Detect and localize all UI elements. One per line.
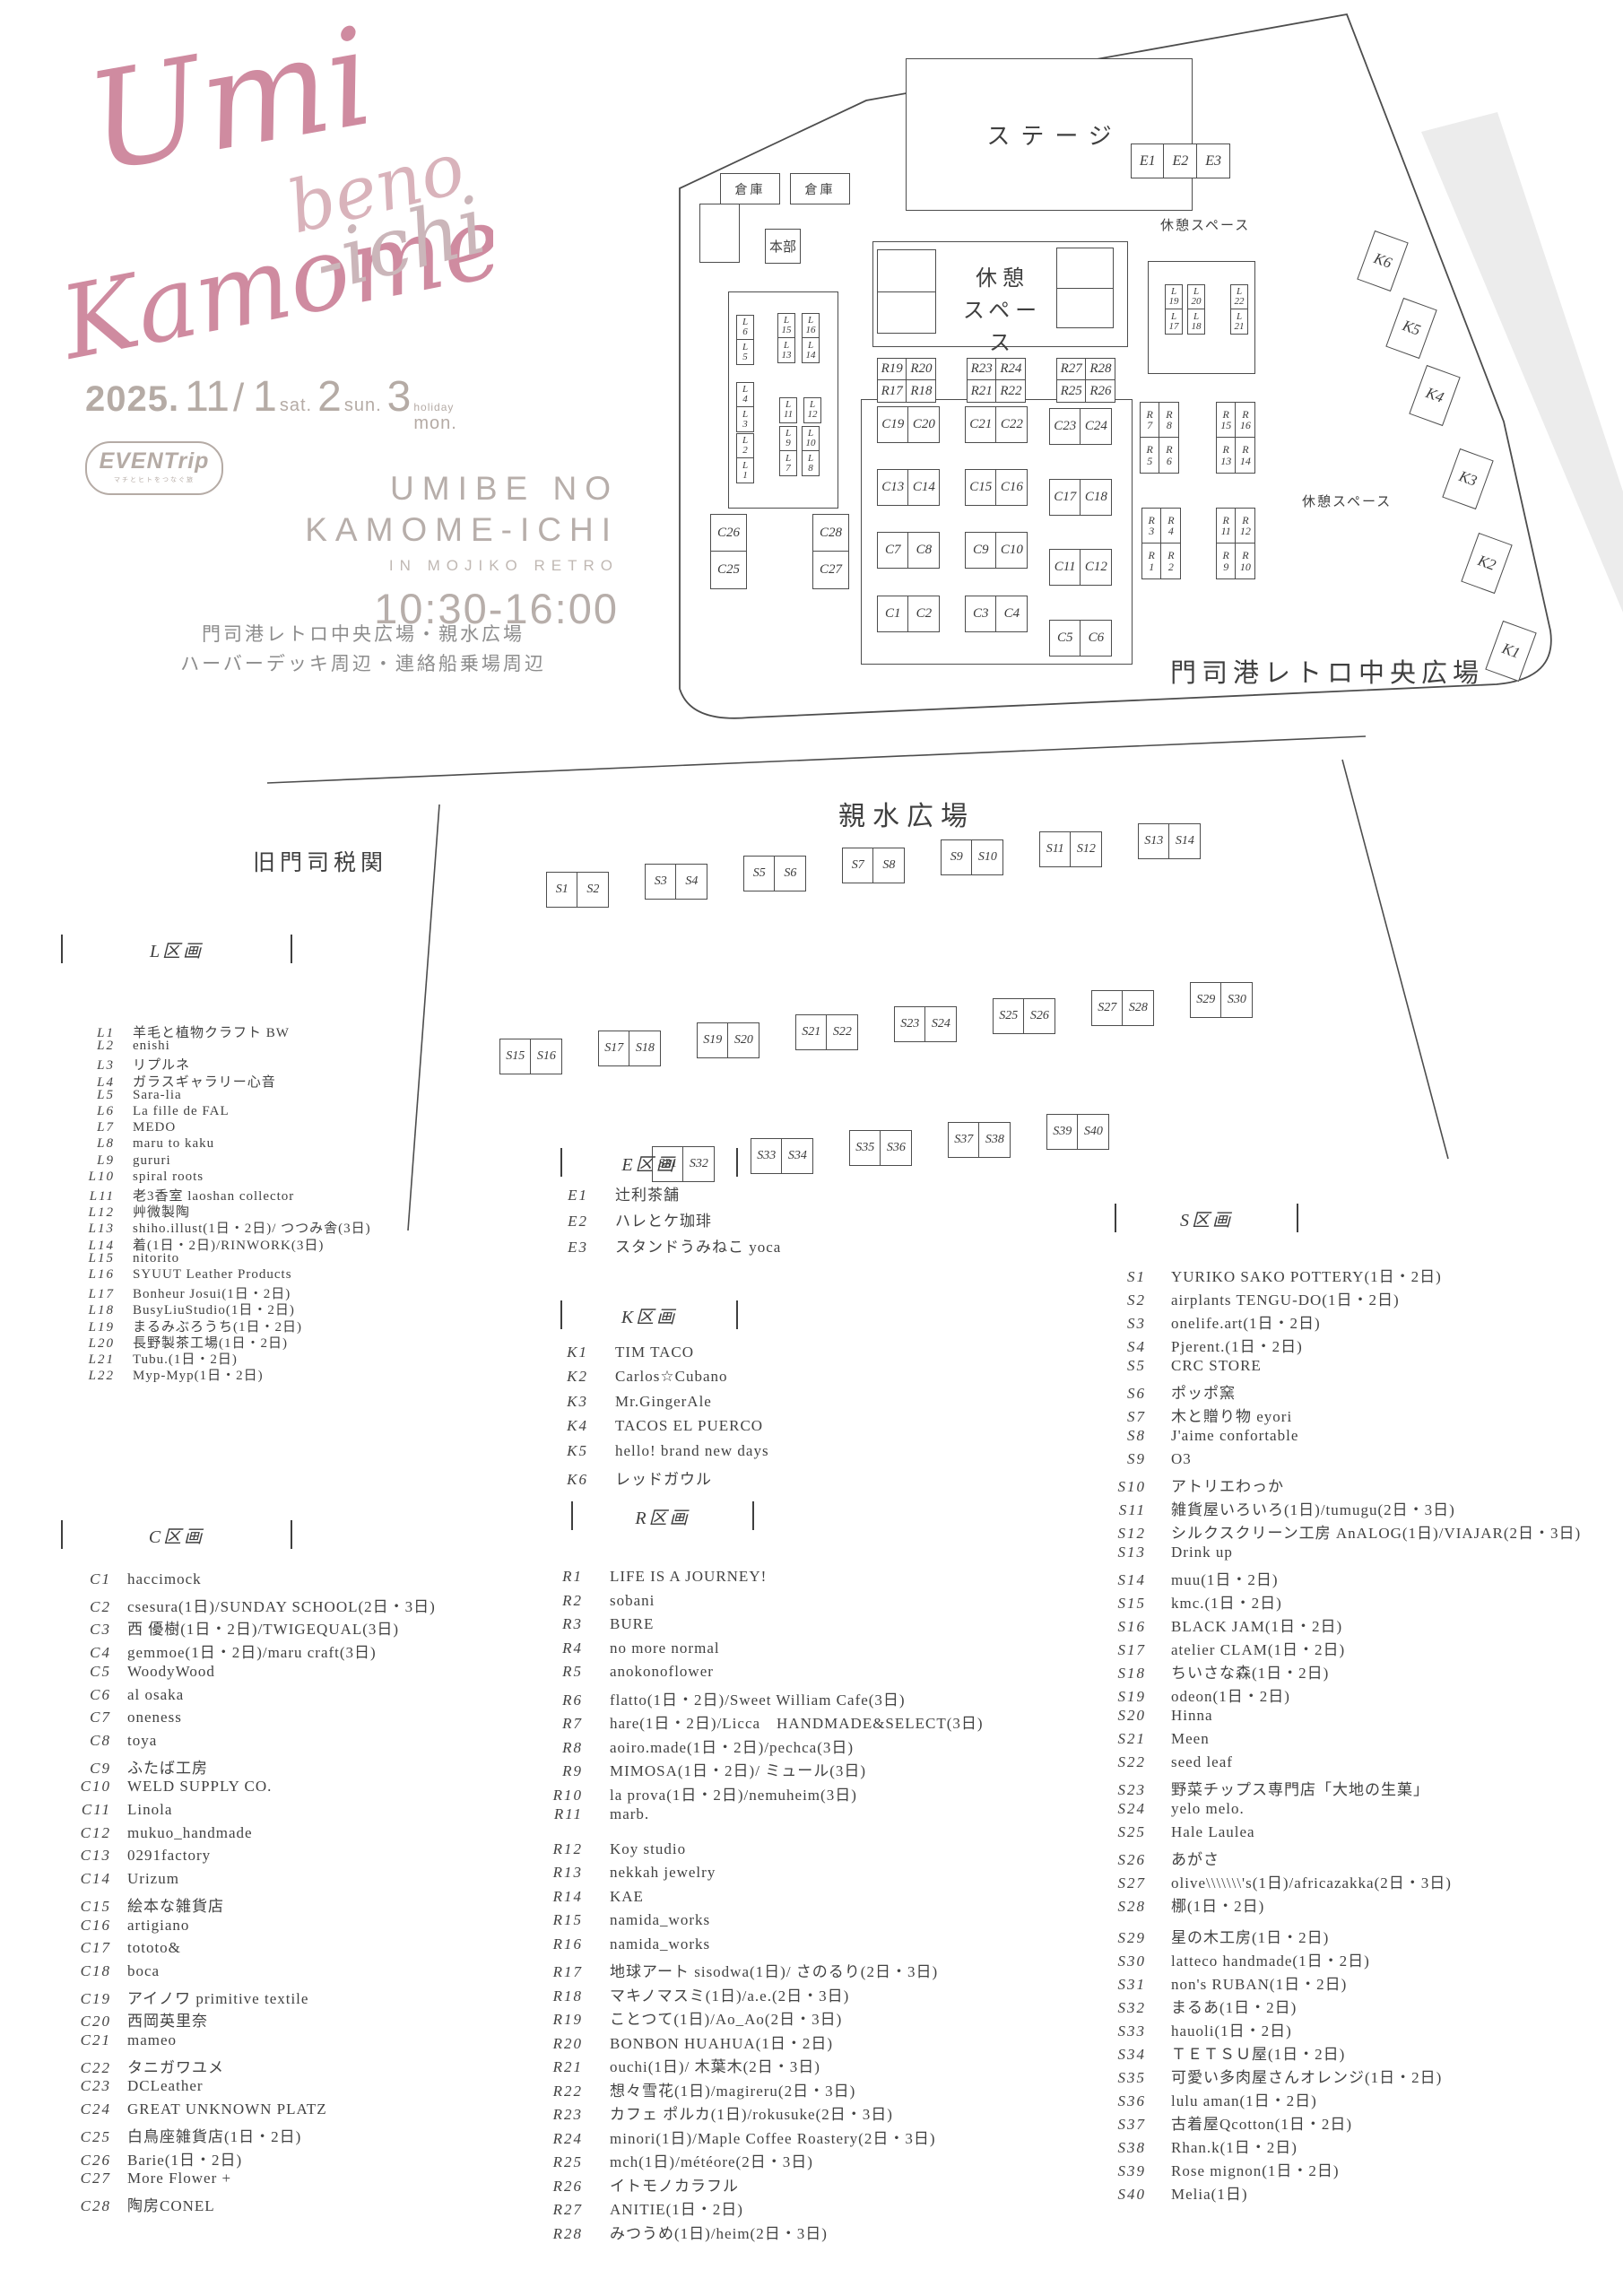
booth-number: S40 bbox=[1081, 2186, 1146, 2204]
list-item-s17: S17atelier CLAM(1日・2日) bbox=[1081, 1637, 1345, 1659]
vendor-name: enishi bbox=[133, 1039, 170, 1054]
date-month: 11 bbox=[185, 372, 230, 422]
vendor-name: KAE bbox=[610, 1888, 644, 1906]
vendor-name: アイノワ primitive textile bbox=[127, 1986, 308, 2008]
s-booth-pair: S39S40 bbox=[1047, 1114, 1109, 1150]
vendor-name: airplants TENGU-DO(1日・2日) bbox=[1171, 1287, 1400, 1309]
booth-cell-R1: R 1 bbox=[1141, 543, 1162, 579]
booth-cell-C13: C13 bbox=[877, 469, 909, 506]
booth-cell-S1: S1 bbox=[546, 872, 578, 908]
booth-cell-L13: L 13 bbox=[777, 337, 795, 363]
booth-number: C7 bbox=[56, 1709, 111, 1726]
list-item-c15: C15絵本な雑貨店 bbox=[56, 1893, 224, 1916]
c-booth-pair: C5C6 bbox=[1050, 620, 1112, 657]
header-bar bbox=[736, 1148, 738, 1177]
header-bar bbox=[61, 935, 63, 963]
booth-number: R27 bbox=[525, 2201, 583, 2219]
booth-number: L10 bbox=[63, 1170, 115, 1185]
booth-number: R6 bbox=[525, 1692, 583, 1709]
l-booth-stack: L 12 bbox=[803, 398, 821, 423]
list-item-c9: C9ふたば工房 bbox=[56, 1755, 208, 1778]
vendor-name: kmc.(1日・2日) bbox=[1171, 1590, 1282, 1613]
vendor-name: Koy studio bbox=[610, 1840, 686, 1858]
booth-cell-S39: S39 bbox=[1046, 1114, 1079, 1150]
booth-cell-R13: R 13 bbox=[1216, 437, 1237, 474]
list-item-c27: C27More Flower + bbox=[56, 2170, 231, 2187]
list-item-s12: S12シルクスクリーン工房 AnALOG(1日)/VIAJAR(2日・3日) bbox=[1081, 1520, 1581, 1543]
s-booth-pair: S1S2 bbox=[547, 872, 609, 908]
booth-number: S29 bbox=[1081, 1929, 1146, 1947]
booth-number: R14 bbox=[525, 1888, 583, 1906]
s-booth-pair: S35S36 bbox=[850, 1130, 912, 1166]
booth-number: R9 bbox=[525, 1762, 583, 1780]
booth-cell-C15: C15 bbox=[965, 469, 997, 506]
header-bar bbox=[571, 1501, 573, 1530]
vendor-name: TIM TACO bbox=[615, 1344, 694, 1361]
booth-number: R18 bbox=[525, 1987, 583, 2005]
vendor-name: BURE bbox=[610, 1615, 654, 1633]
booth-number: R16 bbox=[525, 1935, 583, 1953]
list-item-r10: R10la prova(1日・2日)/nemuheim(3日) bbox=[525, 1782, 857, 1805]
vendor-name: haccimock bbox=[127, 1570, 202, 1588]
event-logo: Umi beno Kamome -ichi bbox=[27, 9, 493, 404]
booth-number: S28 bbox=[1081, 1898, 1146, 1916]
vendor-name: 梛(1日・2日) bbox=[1171, 1893, 1264, 1916]
vendor-name: BLACK JAM(1日・2日) bbox=[1171, 1613, 1342, 1636]
booth-number: S36 bbox=[1081, 2092, 1146, 2110]
c-booth-pair: C3C4 bbox=[966, 596, 1028, 632]
r-booth-side-block: R 3R 4R 1R 2 bbox=[1142, 509, 1184, 579]
organizer-tagline: マチとヒトをつなぐ旅 bbox=[87, 475, 221, 484]
vendor-name: イトモノカラフル bbox=[610, 2173, 739, 2196]
booth-cell-S5: S5 bbox=[743, 856, 776, 891]
section-header-l: L区画 bbox=[61, 935, 292, 963]
booth-number: C17 bbox=[56, 1939, 111, 1957]
booth-cell-C22: C22 bbox=[995, 406, 1028, 443]
booth-cell-R18: R18 bbox=[906, 379, 936, 403]
booth-number: S4 bbox=[1081, 1338, 1146, 1356]
waterfront-plaza-top-line bbox=[267, 736, 1366, 783]
list-item-r9: R9MIMOSA(1日・2日)/ ミュール(3日) bbox=[525, 1758, 866, 1780]
booth-number: L6 bbox=[63, 1104, 115, 1119]
booth-cell-L15: L 15 bbox=[777, 313, 795, 339]
vendor-name: no more normal bbox=[610, 1639, 720, 1657]
booth-number: S12 bbox=[1081, 1525, 1146, 1543]
booth-cell-L12: L 12 bbox=[803, 397, 821, 423]
vendor-name: olive\\\\\\\'s(1日)/africazakka(2日・3日) bbox=[1171, 1870, 1452, 1892]
booth-cell-L9: L 9 bbox=[779, 426, 797, 452]
booth-cell-C10: C10 bbox=[995, 532, 1028, 569]
booth-cell-S10: S10 bbox=[971, 839, 1003, 875]
booth-cell-R28: R28 bbox=[1085, 358, 1115, 381]
vendor-name: ふたば工房 bbox=[127, 1755, 208, 1778]
booth-number: C28 bbox=[56, 2197, 111, 2215]
l-booth-stack: L 9L 7 bbox=[779, 427, 797, 476]
booth-cell-C24: C24 bbox=[1080, 408, 1112, 445]
vendor-name: seed leaf bbox=[1171, 1753, 1233, 1771]
booth-cell-R10: R 10 bbox=[1235, 543, 1255, 579]
booth-cell-L18: L 18 bbox=[1187, 309, 1205, 335]
date-slash: / bbox=[233, 376, 244, 421]
booth-number: R3 bbox=[525, 1615, 583, 1633]
booth-cell-C26: C26 bbox=[710, 514, 747, 552]
unlabeled-building bbox=[699, 204, 740, 263]
list-item-c12: C12mukuo_handmade bbox=[56, 1824, 253, 1842]
c-booth-pair: C1C2 bbox=[878, 596, 940, 632]
booth-number: S15 bbox=[1081, 1595, 1146, 1613]
list-item-s40: S40Melia(1日) bbox=[1081, 2181, 1247, 2204]
list-item-s39: S39Rose mignon(1日・2日) bbox=[1081, 2158, 1340, 2180]
list-item-c2: C2csesura(1日)/SUNDAY SCHOOL(2日・3日) bbox=[56, 1594, 436, 1616]
booth-number: S5 bbox=[1081, 1357, 1146, 1375]
list-item-s6: S6ポッポ窯 bbox=[1081, 1380, 1236, 1403]
booth-cell-C12: C12 bbox=[1080, 549, 1112, 586]
booth-number: C20 bbox=[56, 2013, 111, 2031]
list-item-s16: S16BLACK JAM(1日・2日) bbox=[1081, 1613, 1342, 1636]
booth-cell-S3: S3 bbox=[645, 864, 677, 900]
booth-number: L15 bbox=[63, 1251, 115, 1266]
list-item-c13: C130291factory bbox=[56, 1847, 211, 1865]
booth-cell-C4: C4 bbox=[995, 596, 1028, 632]
list-item-e2: E2ハレとケ珈琲 bbox=[538, 1208, 712, 1231]
booth-number: R22 bbox=[525, 2083, 583, 2100]
booth-cell-L22: L 22 bbox=[1230, 284, 1248, 310]
booth-cell-C7: C7 bbox=[877, 532, 909, 569]
section-title-c: C区画 bbox=[149, 1522, 204, 1548]
vendor-name: 野菜チップス専門店「大地の生菓」 bbox=[1171, 1777, 1429, 1799]
vendor-name: シルクスクリーン工房 AnALOG(1日)/VIAJAR(2日・3日) bbox=[1171, 1520, 1581, 1543]
vendor-name: Myp-Myp(1日・2日) bbox=[133, 1365, 264, 1384]
section-header-c: C区画 bbox=[61, 1520, 292, 1549]
vendor-name: gururi bbox=[133, 1153, 171, 1169]
booth-cell-L2: L 2 bbox=[736, 433, 754, 459]
booth-cell-C3: C3 bbox=[965, 596, 997, 632]
booth-cell-C19: C19 bbox=[877, 406, 909, 443]
booth-number: C22 bbox=[56, 2059, 111, 2077]
vendor-name: アトリエわっか bbox=[1171, 1474, 1284, 1496]
vendor-name: mch(1日)/météore(2日・3日) bbox=[610, 2149, 813, 2171]
booth-number: C15 bbox=[56, 1898, 111, 1916]
list-item-c25: C25白鳥座雑貨店(1日・2日) bbox=[56, 2124, 301, 2146]
booth-cell-E1: E1 bbox=[1131, 143, 1165, 178]
c-booth-pair: C15C16 bbox=[966, 469, 1028, 506]
booth-cell-R11: R 11 bbox=[1216, 508, 1237, 544]
list-item-r11: R11marb. bbox=[525, 1805, 649, 1823]
booth-cell-L7: L 7 bbox=[779, 450, 797, 476]
list-item-s23: S23野菜チップス専門店「大地の生菓」 bbox=[1081, 1777, 1429, 1799]
booth-number: R20 bbox=[525, 2035, 583, 2053]
section-header-s: S区画 bbox=[1115, 1204, 1298, 1232]
booth-cell-S9: S9 bbox=[941, 839, 973, 875]
list-item-l5: L5Sara-lia bbox=[63, 1088, 182, 1103]
booth-number: E2 bbox=[538, 1213, 588, 1231]
c-booth-pair: C11C12 bbox=[1050, 549, 1112, 586]
date-day2: 2 bbox=[317, 372, 342, 422]
vendor-name: スタンドうみねこ yoca bbox=[615, 1234, 781, 1257]
vendor-name: 古着屋Qcotton(1日・2日) bbox=[1171, 2111, 1352, 2134]
vendor-name: Rhan.k(1日・2日) bbox=[1171, 2135, 1298, 2157]
rest-table-left bbox=[877, 249, 936, 334]
list-item-l6: L6La fille de FAL bbox=[63, 1104, 230, 1119]
booth-number: K3 bbox=[538, 1393, 588, 1411]
vendor-name: Meen bbox=[1171, 1730, 1210, 1748]
list-item-s34: S34ＴＥＴＳＵ屋(1日・2日) bbox=[1081, 2041, 1345, 2064]
list-item-r3: R3BURE bbox=[525, 1615, 654, 1633]
vendor-name: Urizum bbox=[127, 1870, 179, 1888]
booth-number: S16 bbox=[1081, 1618, 1146, 1636]
booth-cell-S28: S28 bbox=[1122, 990, 1154, 1026]
venue-lines: 門司港レトロ中央広場・親水広場 ハーバーデッキ周辺・連絡船乗場周辺 bbox=[94, 621, 632, 679]
vendor-name: flatto(1日・2日)/Sweet William Cafe(3日) bbox=[610, 1687, 906, 1709]
booth-cell-C23: C23 bbox=[1049, 408, 1081, 445]
vendor-name: namida_works bbox=[610, 1935, 710, 1953]
l-booth-stack: L 10L 8 bbox=[802, 427, 820, 476]
c-booth-pair: C19C20 bbox=[878, 406, 940, 443]
vendor-name: More Flower + bbox=[127, 2170, 231, 2187]
booth-cell-R7: R 7 bbox=[1140, 402, 1160, 439]
booth-cell-C5: C5 bbox=[1049, 620, 1081, 657]
list-item-s35: S35可愛い多肉屋さんオレンジ(1日・2日) bbox=[1081, 2065, 1442, 2087]
booth-cell-L6: L 6 bbox=[736, 315, 754, 341]
vendor-name: Rose mignon(1日・2日) bbox=[1171, 2158, 1340, 2180]
l-booth-stack: L 19L 17 bbox=[1165, 285, 1183, 335]
booth-cell-S14: S14 bbox=[1168, 823, 1201, 859]
list-item-s32: S32まるあ(1日・2日) bbox=[1081, 1995, 1297, 2017]
vendor-name: YURIKO SAKO POTTERY(1日・2日) bbox=[1171, 1264, 1442, 1286]
s-booth-pair: S33S34 bbox=[751, 1138, 813, 1174]
booth-number: S39 bbox=[1081, 2162, 1146, 2180]
vendor-name: ことつて(1日)/Ao_Ao(2日・3日) bbox=[610, 2006, 842, 2029]
s-booth-pair: S23S24 bbox=[895, 1006, 957, 1042]
booth-number: R2 bbox=[525, 1592, 583, 1610]
booth-cell-S7: S7 bbox=[842, 848, 874, 883]
vendor-name: 西岡英里奈 bbox=[127, 2008, 208, 2031]
s-booth-pair: S29S30 bbox=[1191, 982, 1253, 1018]
list-item-r8: R8aoiro.made(1日・2日)/pechca(3日) bbox=[525, 1735, 854, 1757]
list-item-s36: S36lulu aman(1日・2日) bbox=[1081, 2088, 1317, 2110]
rest-center-label: 休憩 スペース bbox=[952, 263, 1053, 360]
vendor-name: maru to kaku bbox=[133, 1136, 214, 1152]
c-booth-pair: C13C14 bbox=[878, 469, 940, 506]
booth-number: S30 bbox=[1081, 1952, 1146, 1970]
list-item-r17: R17地球アート sisodwa(1日)/ さのるり(2日・3日) bbox=[525, 1959, 938, 1981]
vendor-name: onelife.art(1日・2日) bbox=[1171, 1310, 1321, 1333]
date-day3: 3 bbox=[387, 372, 412, 422]
list-item-e1: E1辻利茶舗 bbox=[538, 1182, 680, 1205]
list-item-r12: R12Koy studio bbox=[525, 1840, 686, 1858]
booth-number: C24 bbox=[56, 2100, 111, 2118]
list-item-c22: C22タニガワユメ bbox=[56, 2055, 224, 2077]
booth-cell-S4: S4 bbox=[675, 864, 707, 900]
vendor-name: 絵本な雑貨店 bbox=[127, 1893, 224, 1916]
c-booth-stack: C26C25 bbox=[710, 515, 747, 589]
booth-number: R12 bbox=[525, 1840, 583, 1858]
list-item-r7: R7hare(1日・2日)/Licca HANDMADE&SELECT(3日) bbox=[525, 1710, 984, 1733]
booth-number: R28 bbox=[525, 2225, 583, 2243]
list-item-c1: C1haccimock bbox=[56, 1570, 202, 1588]
booth-cell-R15: R 15 bbox=[1216, 402, 1237, 439]
vendor-name: minori(1日)/Maple Coffee Roastery(2日・3日) bbox=[610, 2126, 936, 2148]
vendor-name: MEDO bbox=[133, 1120, 176, 1135]
booth-number: S31 bbox=[1081, 1976, 1146, 1994]
booth-number: L16 bbox=[63, 1267, 115, 1283]
section-title-k: K区画 bbox=[621, 1302, 677, 1328]
section-title-l: L区画 bbox=[150, 936, 204, 962]
list-item-k4: K4TACOS EL PUERCO bbox=[538, 1417, 763, 1435]
booth-number: C3 bbox=[56, 1621, 111, 1639]
list-item-r13: R13nekkah jewelry bbox=[525, 1864, 716, 1882]
vendor-name: 木と贈り物 eyori bbox=[1171, 1404, 1292, 1426]
vendor-name: 0291factory bbox=[127, 1847, 211, 1865]
booth-cell-L16: L 16 bbox=[802, 313, 820, 339]
booth-number: S20 bbox=[1081, 1707, 1146, 1725]
booth-cell-C11: C11 bbox=[1049, 549, 1081, 586]
booth-number: R13 bbox=[525, 1864, 583, 1882]
booth-number: S7 bbox=[1081, 1408, 1146, 1426]
vendor-name: タニガワユメ bbox=[127, 2055, 224, 2077]
section-header-k: K区画 bbox=[560, 1300, 738, 1329]
road-band bbox=[1421, 112, 1623, 613]
header-bar bbox=[1297, 1204, 1298, 1232]
header-bar bbox=[736, 1300, 738, 1329]
header-bar bbox=[291, 1520, 292, 1549]
list-item-c11: C11Linola bbox=[56, 1801, 172, 1819]
list-item-s24: S24yelo melo. bbox=[1081, 1800, 1245, 1818]
booth-number: L22 bbox=[63, 1369, 115, 1384]
list-item-s33: S33hauoli(1日・2日) bbox=[1081, 2018, 1292, 2040]
booth-cell-S25: S25 bbox=[993, 998, 1025, 1034]
booth-number: S21 bbox=[1081, 1730, 1146, 1748]
vendor-name: oneness bbox=[127, 1709, 182, 1726]
vendor-name: まるあ(1日・2日) bbox=[1171, 1995, 1297, 2017]
r-booth-block: R23R24R21R22 bbox=[968, 359, 1028, 403]
list-item-c8: C8toya bbox=[56, 1732, 157, 1750]
vendor-name: WoodyWood bbox=[127, 1663, 215, 1681]
list-item-r18: R18マキノマスミ(1日)/a.e.(2日・3日) bbox=[525, 1983, 849, 2005]
s-booth-pair: S11S12 bbox=[1040, 831, 1102, 867]
vendor-name: La fille de FAL bbox=[133, 1104, 230, 1119]
vendor-name: O3 bbox=[1171, 1450, 1192, 1468]
vendor-name: tototo& bbox=[127, 1939, 181, 1957]
list-item-c24: C24GREAT UNKNOWN PLATZ bbox=[56, 2100, 327, 2118]
booth-number: R17 bbox=[525, 1963, 583, 1981]
list-item-s19: S19odeon(1日・2日) bbox=[1081, 1683, 1290, 1706]
booth-number: R23 bbox=[525, 2106, 583, 2124]
booth-cell-S33: S33 bbox=[751, 1138, 783, 1174]
vendor-name: WELD SUPPLY CO. bbox=[127, 1778, 272, 1796]
booth-cell-C27: C27 bbox=[812, 551, 849, 589]
hq-box: 本部 bbox=[765, 229, 801, 264]
vendor-name: 地球アート sisodwa(1日)/ さのるり(2日・3日) bbox=[610, 1959, 938, 1981]
r-booth-side-block: R 15R 16R 13R 14 bbox=[1217, 403, 1258, 474]
booth-number: S19 bbox=[1081, 1688, 1146, 1706]
booth-number: S25 bbox=[1081, 1823, 1146, 1841]
l-booth-stack: L 4L 3 bbox=[736, 383, 754, 432]
vendor-name: odeon(1日・2日) bbox=[1171, 1683, 1290, 1706]
vendor-name: マキノマスミ(1日)/a.e.(2日・3日) bbox=[610, 1983, 849, 2005]
booth-number: C12 bbox=[56, 1824, 111, 1842]
list-item-k6: K6レッドガウル bbox=[538, 1466, 712, 1489]
list-item-s15: S15kmc.(1日・2日) bbox=[1081, 1590, 1282, 1613]
booth-cell-C8: C8 bbox=[907, 532, 940, 569]
organizer-badge: EVENTrip マチとヒトをつなぐ旅 bbox=[85, 441, 223, 495]
vendor-name: ouchi(1日)/ 木葉木(2日・3日) bbox=[610, 2054, 820, 2076]
list-item-s4: S4Pjerent.(1日・2日) bbox=[1081, 1334, 1303, 1356]
event-title-block: UMIBE NO KAMOME-ICHI IN MOJIKO RETRO 10:… bbox=[224, 468, 619, 633]
vendor-name: GREAT UNKNOWN PLATZ bbox=[127, 2100, 327, 2118]
vendor-name: 想々雪花(1日)/magireru(2日・3日) bbox=[610, 2078, 855, 2100]
booth-cell-S16: S16 bbox=[530, 1039, 562, 1074]
date-day1: 1 bbox=[253, 372, 277, 422]
vendor-name: hello! brand new days bbox=[615, 1442, 769, 1460]
booth-number: S23 bbox=[1081, 1781, 1146, 1799]
booth-number: R11 bbox=[525, 1805, 583, 1823]
list-item-c5: C5WoodyWood bbox=[56, 1663, 215, 1681]
list-item-c20: C20西岡英里奈 bbox=[56, 2008, 208, 2031]
booth-number: K4 bbox=[538, 1417, 588, 1435]
s-booth-pair: S9S10 bbox=[942, 839, 1003, 875]
s-booth-pair: S7S8 bbox=[843, 848, 905, 883]
list-item-r28: R28みつうめ(1日)/heim(2日・3日) bbox=[525, 2221, 828, 2243]
list-item-k3: K3Mr.GingerAle bbox=[538, 1393, 712, 1411]
s-booth-pair: S19S20 bbox=[698, 1022, 759, 1058]
vendor-name: atelier CLAM(1日・2日) bbox=[1171, 1637, 1345, 1659]
list-item-s18: S18ちいさな森(1日・2日) bbox=[1081, 1660, 1329, 1683]
booth-cell-C16: C16 bbox=[995, 469, 1028, 506]
booth-number: R19 bbox=[525, 2011, 583, 2029]
booth-number: C27 bbox=[56, 2170, 111, 2187]
booth-number: S10 bbox=[1081, 1478, 1146, 1496]
list-item-c18: C18boca bbox=[56, 1962, 160, 1980]
vendor-name: J'aime confortable bbox=[1171, 1427, 1298, 1445]
booth-cell-R2: R 2 bbox=[1160, 543, 1181, 579]
booth-cell-S12: S12 bbox=[1070, 831, 1102, 867]
list-item-s30: S30latteco handmade(1日・2日) bbox=[1081, 1948, 1370, 1970]
list-item-e3: E3スタンドうみねこ yoca bbox=[538, 1234, 781, 1257]
booth-cell-S18: S18 bbox=[629, 1031, 661, 1066]
warehouse-2: 倉庫 bbox=[790, 173, 850, 204]
list-item-c17: C17tototo& bbox=[56, 1939, 181, 1957]
vendor-name: カフェ ポルカ(1日)/rokusuke(2日・3日) bbox=[610, 2101, 893, 2124]
list-item-s3: S3onelife.art(1日・2日) bbox=[1081, 1310, 1321, 1333]
booth-number: K5 bbox=[538, 1442, 588, 1460]
list-item-l15: L15nitorito bbox=[63, 1251, 179, 1266]
booth-number: E1 bbox=[538, 1187, 588, 1205]
vendor-name: 西 優樹(1日・2日)/TWIGEQUAL(3日) bbox=[127, 1616, 399, 1639]
list-item-s26: S26あがさ bbox=[1081, 1847, 1219, 1869]
booth-cell-S13: S13 bbox=[1138, 823, 1170, 859]
list-item-k5: K5hello! brand new days bbox=[538, 1442, 769, 1460]
vendor-name: mukuo_handmade bbox=[127, 1824, 253, 1842]
booth-number: L7 bbox=[63, 1120, 115, 1135]
list-item-s7: S7木と贈り物 eyori bbox=[1081, 1404, 1292, 1426]
vendor-name: Linola bbox=[127, 1801, 172, 1819]
booth-cell-C25: C25 bbox=[710, 551, 747, 589]
booth-cell-S20: S20 bbox=[727, 1022, 759, 1058]
booth-cell-S26: S26 bbox=[1023, 998, 1055, 1034]
booth-cell-C1: C1 bbox=[877, 596, 909, 632]
s-booth-pair: S25S26 bbox=[994, 998, 1055, 1034]
list-item-c7: C7oneness bbox=[56, 1709, 182, 1726]
vendor-name: nekkah jewelry bbox=[610, 1864, 716, 1882]
booth-number: C5 bbox=[56, 1663, 111, 1681]
stage-label: ステージ bbox=[986, 118, 1122, 152]
l-booth-stack: L 6L 5 bbox=[736, 316, 754, 365]
booth-cell-R19: R19 bbox=[877, 358, 907, 381]
list-item-r15: R15namida_works bbox=[525, 1911, 710, 1929]
list-item-c28: C28陶房CONEL bbox=[56, 2193, 215, 2215]
booth-cell-E2: E2 bbox=[1163, 143, 1197, 178]
